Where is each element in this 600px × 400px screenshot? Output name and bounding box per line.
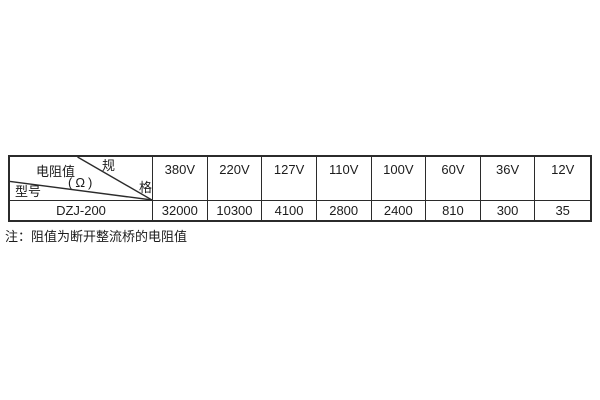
column-header-12v: 12V xyxy=(535,157,590,201)
column-header-380v: 380V xyxy=(153,157,208,201)
column-header-60v: 60V xyxy=(426,157,481,201)
resistance-value-60v: 810 xyxy=(426,201,481,220)
corner-label-spec-top: 规 xyxy=(102,159,115,172)
corner-label-ohm-unit: (Ω) xyxy=(68,176,95,189)
corner-label-model: 型号 xyxy=(15,185,41,198)
column-header-127v: 127V xyxy=(262,157,317,201)
resistance-value-36v: 300 xyxy=(481,201,536,220)
resistance-value-220v: 10300 xyxy=(208,201,263,220)
diagonal-header-cell: 规 电阻值 (Ω) 格 型号 xyxy=(10,157,153,201)
resistance-value-100v: 2400 xyxy=(372,201,427,220)
column-header-36v: 36V xyxy=(481,157,536,201)
resistance-value-12v: 35 xyxy=(535,201,590,220)
resistance-spec-table: 规 电阻值 (Ω) 格 型号 380V 220V 127V 110V 100V … xyxy=(8,155,592,222)
resistance-value-127v: 4100 xyxy=(262,201,317,220)
model-cell: DZJ-200 xyxy=(10,201,153,220)
column-header-100v: 100V xyxy=(372,157,427,201)
corner-label-spec-bottom: 格 xyxy=(139,181,152,194)
resistance-value-110v: 2800 xyxy=(317,201,372,220)
column-header-220v: 220V xyxy=(208,157,263,201)
table-footnote: 注：阻值为断开整流桥的电阻值 xyxy=(5,229,187,245)
column-header-110v: 110V xyxy=(317,157,372,201)
resistance-value-380v: 32000 xyxy=(153,201,208,220)
